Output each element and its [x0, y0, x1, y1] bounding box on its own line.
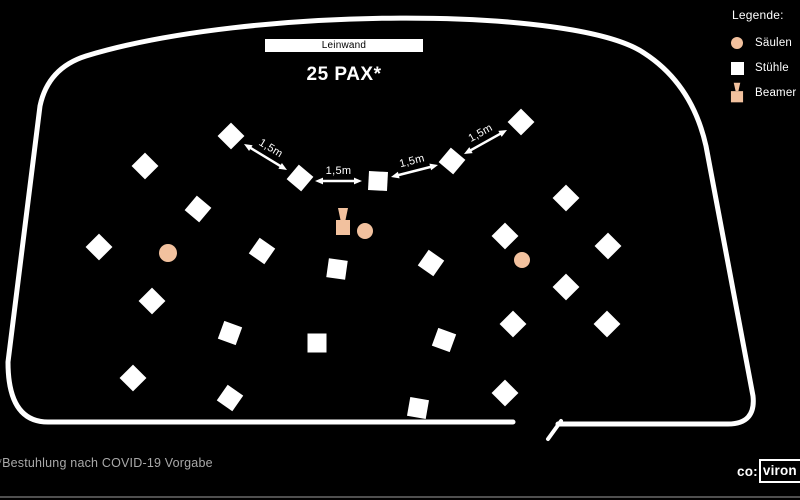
- screen-bar: Leinwand: [265, 39, 423, 52]
- beamer-icon-lens: [338, 208, 348, 220]
- arrowhead-icon: [354, 178, 362, 185]
- chair-square: [218, 321, 242, 345]
- arrowhead-icon: [315, 178, 323, 185]
- arrowhead-icon: [391, 172, 400, 179]
- legend-item-label: Beamer: [755, 87, 796, 99]
- chair-square: [553, 274, 580, 301]
- legend-item-saeulen: Säulen: [730, 35, 796, 51]
- brand-logo-boxed: viron: [759, 459, 800, 483]
- chair-square: [218, 123, 245, 150]
- chair-square: [595, 233, 622, 260]
- column-circle: [357, 223, 373, 239]
- column-icon: [730, 37, 744, 49]
- beamer-icon-body: [336, 220, 350, 235]
- chair-square: [120, 365, 147, 392]
- chair-square: [217, 385, 243, 411]
- chair-square: [492, 223, 519, 250]
- chair-square: [418, 250, 444, 276]
- covid-footnote: *Bestuhlung nach COVID-19 Vorgabe: [0, 456, 213, 470]
- brand-logo-prefix: co:: [737, 464, 758, 479]
- chair-square: [500, 311, 527, 338]
- chair-square: [594, 311, 621, 338]
- bottom-divider: [0, 496, 800, 498]
- chair-square: [326, 258, 347, 279]
- chair-square: [308, 334, 327, 353]
- distance-label: 1,5m: [398, 152, 426, 170]
- column-circle: [159, 244, 177, 262]
- brand-logo: co:viron: [737, 459, 800, 483]
- arrowhead-icon: [429, 164, 438, 171]
- chair-square: [407, 397, 429, 419]
- chair-square: [553, 185, 580, 212]
- chair-square: [492, 380, 519, 407]
- pax-count-label: 25 PAX*: [265, 64, 423, 86]
- legend-item-label: Stühle: [755, 62, 789, 74]
- legend: Legende: Säulen Stühle Beamer: [730, 8, 796, 110]
- distance-label: 1,5m: [467, 122, 495, 145]
- chair-square: [139, 288, 166, 315]
- chair-square: [132, 153, 159, 180]
- legend-title: Legende:: [732, 8, 796, 22]
- chair-square: [368, 171, 388, 191]
- legend-item-stuehle: Stühle: [730, 60, 796, 76]
- distance-label: 1,5m: [326, 165, 352, 177]
- distance-label: 1,5m: [257, 137, 285, 161]
- screen-label: Leinwand: [322, 40, 366, 51]
- legend-item-beamer: Beamer: [730, 85, 796, 101]
- floor-plan: 1,5m1,5m1,5m1,5m Leinwand 25 PAX* Legend…: [0, 0, 800, 500]
- chair-square: [432, 328, 456, 352]
- chair-square: [508, 109, 535, 136]
- chair-square: [86, 234, 113, 261]
- door-line: [548, 421, 561, 439]
- chair-square: [185, 196, 212, 223]
- chair-square: [287, 165, 314, 192]
- chair-square: [439, 148, 466, 175]
- chair-square: [249, 238, 275, 264]
- beamer-icon: [730, 82, 744, 104]
- column-circle: [514, 252, 530, 268]
- legend-item-label: Säulen: [755, 37, 792, 49]
- chair-icon: [730, 62, 744, 75]
